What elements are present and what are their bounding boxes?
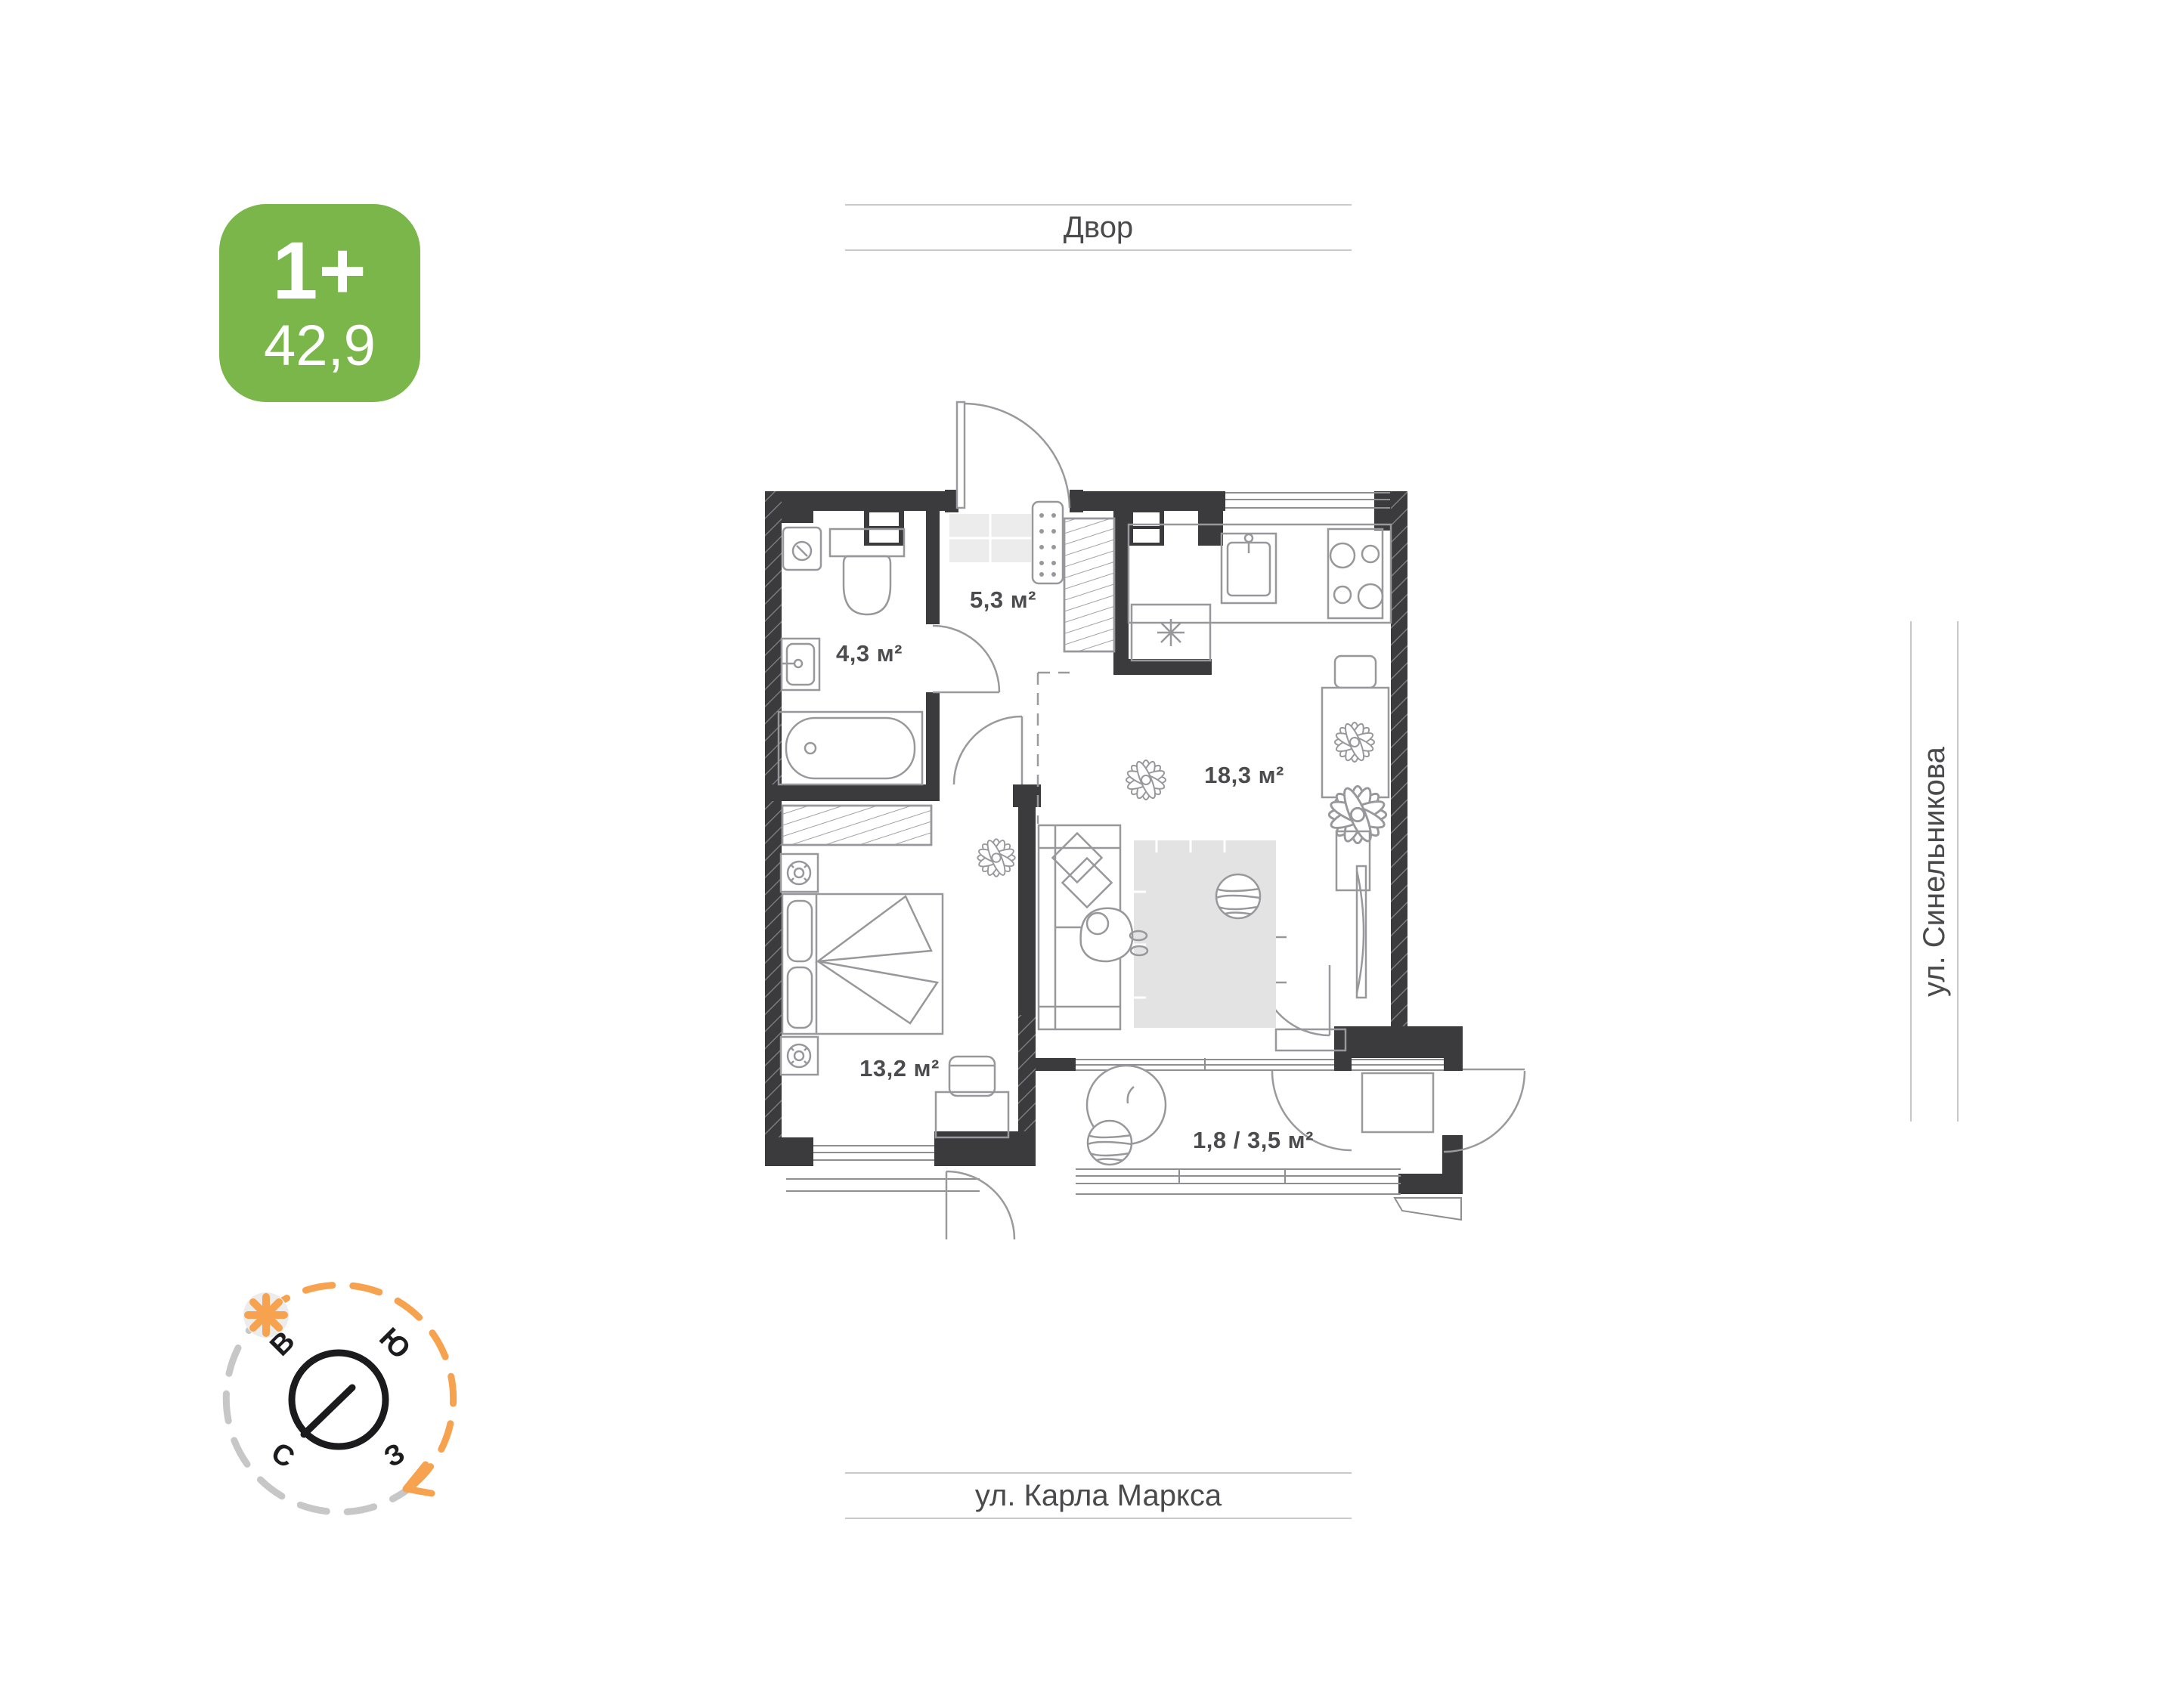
bedroom-closet — [782, 806, 931, 845]
compass-west-letter: З — [379, 1437, 410, 1474]
zone-boundary — [1038, 673, 1070, 824]
hallway-area-label: 5,3 м² — [970, 586, 1036, 613]
compass: В Ю С З — [226, 1285, 453, 1512]
window-sill — [1395, 1198, 1461, 1220]
nightstand-bottom — [781, 1037, 818, 1075]
entrance-door — [957, 402, 1070, 508]
wardrobe — [1064, 518, 1114, 651]
bathroom-area-label: 4,3 м² — [836, 640, 903, 667]
kitchen-sink — [1222, 534, 1276, 603]
kitchen-window — [1225, 493, 1390, 508]
pouf — [1216, 874, 1260, 918]
kitchen-living-area-label: 18,3 м² — [1204, 762, 1284, 788]
shoe-rack — [1033, 502, 1063, 583]
facade-door — [946, 1171, 1014, 1239]
rug — [1134, 840, 1287, 1028]
compass-south-letter: Ю — [373, 1322, 416, 1365]
balcony-window — [1076, 1169, 1401, 1194]
plant-bedroom — [977, 839, 1016, 877]
floor-plan-drawing: 5,3 м² 4,3 м² 18,3 м² 13,2 м² 1,8 / 3,5 … — [0, 0, 2177, 1708]
plant-hallway — [1126, 760, 1166, 800]
kitchen-counter — [1129, 524, 1391, 623]
bedroom-area-label: 13,2 м² — [859, 1055, 940, 1081]
compass-north-letter: С — [266, 1437, 300, 1474]
bathtub — [779, 712, 922, 784]
bathroom-door — [933, 626, 999, 692]
balcony-chair — [1087, 1066, 1166, 1165]
bathroom-sink — [782, 639, 819, 690]
stove — [1328, 529, 1383, 618]
fridge-nook — [1132, 605, 1210, 661]
tv — [1357, 866, 1366, 998]
balcony-area-label: 1,8 / 3,5 м² — [1193, 1127, 1314, 1153]
entrance-mat — [949, 514, 1031, 562]
floor-plan-page: 1+ 42,9 Двор ул. Синельникова ул. Карла … — [0, 0, 2177, 1708]
nightstand-top — [781, 854, 818, 892]
balcony-door-threshold — [1352, 1060, 1444, 1070]
bedroom-door — [954, 716, 1022, 784]
desk — [936, 1057, 1008, 1137]
bed — [782, 894, 943, 1034]
washing-machine — [783, 528, 821, 570]
